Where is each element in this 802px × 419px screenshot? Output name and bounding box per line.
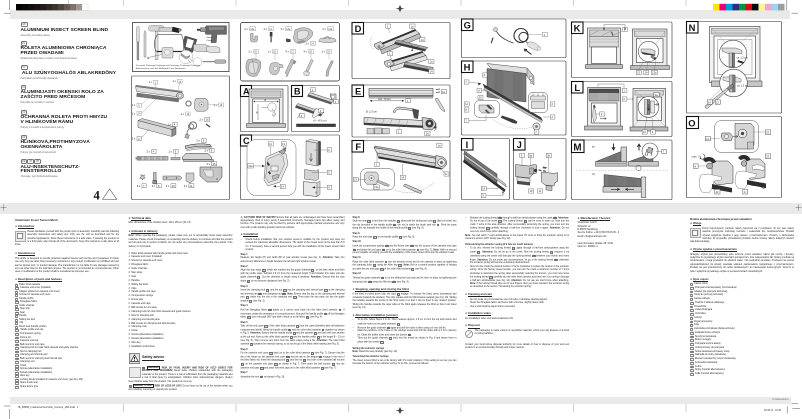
- svg-text:• 5mm: • 5mm: [206, 40, 212, 42]
- svg-text:min. 70 cm: min. 70 cm: [378, 97, 391, 101]
- svg-text:ca. 1,2 cm: ca. 1,2 cm: [737, 56, 748, 59]
- svg-text:H - 4,5 cm: H - 4,5 cm: [314, 119, 328, 123]
- svg-text:M: M: [573, 142, 581, 153]
- svg-text:max. 7x: max. 7x: [692, 154, 702, 158]
- svg-text:12a: 12a: [250, 28, 255, 31]
- svg-text:F: F: [355, 141, 361, 152]
- svg-text:A: A: [744, 190, 746, 194]
- svg-text:ca. 1,2 cm: ca. 1,2 cm: [737, 84, 748, 87]
- svg-text:max. 7x: max. 7x: [751, 183, 761, 187]
- svg-text:A: A: [694, 164, 696, 168]
- svg-text:L: L: [574, 82, 580, 93]
- svg-text:J: J: [517, 139, 522, 150]
- svg-text:b): b): [593, 172, 596, 176]
- svg-text:14a: 14a: [328, 28, 333, 31]
- svg-text:O: O: [688, 117, 695, 128]
- svg-text:B: B: [294, 87, 301, 97]
- svg-text:H: H: [464, 62, 471, 73]
- svg-text:H: H: [256, 111, 258, 115]
- svg-text:E: E: [355, 86, 361, 97]
- svg-text:B: 1,5 cm: B: 1,5 cm: [366, 110, 378, 114]
- svg-text:180°: 180°: [414, 46, 419, 49]
- svg-text:I: I: [466, 139, 469, 150]
- svg-text:A: A: [478, 89, 480, 93]
- svg-text:13a: 13a: [652, 71, 657, 75]
- svg-text:13a: 13a: [248, 164, 253, 168]
- svg-text:D: D: [355, 23, 362, 34]
- svg-text:Bohrmaschine und -bits Maßban: Bohrmaschine und -bits Maßband 6 mm Stei…: [136, 67, 186, 70]
- svg-text:G: G: [464, 20, 471, 31]
- svg-text:• 6mm: • 6mm: [206, 37, 212, 39]
- svg-text:K: K: [574, 23, 581, 34]
- svg-text:13a: 13a: [374, 185, 379, 189]
- svg-text:N: N: [689, 22, 696, 33]
- svg-text:a): a): [592, 144, 595, 148]
- svg-text:You need: Pistolsäge Schlange: You need: Pistolsäge Schlange mit Pistol…: [136, 64, 201, 67]
- svg-text:13a: 13a: [286, 28, 291, 31]
